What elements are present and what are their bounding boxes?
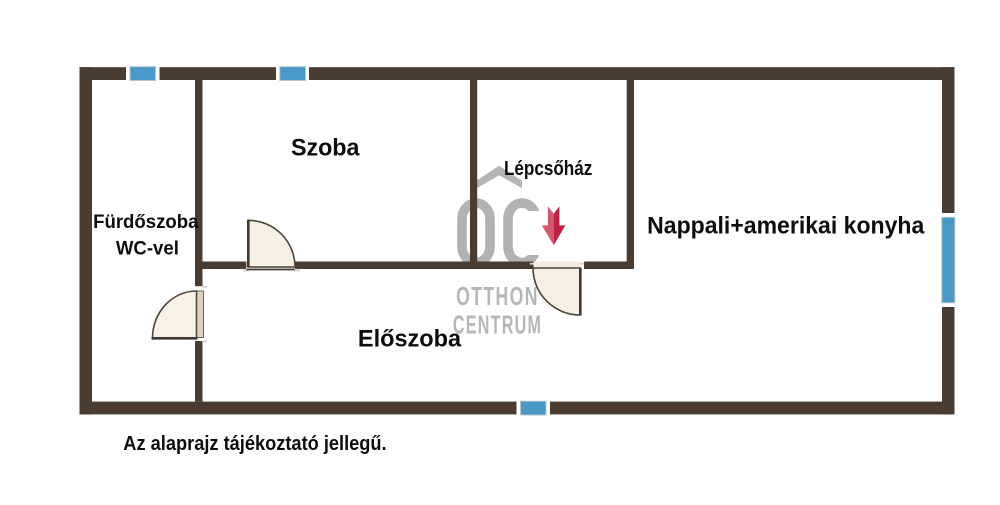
svg-text:Előszoba: Előszoba	[358, 325, 462, 352]
svg-text:Lépcsőház: Lépcsőház	[504, 157, 592, 180]
svg-text:Az alaprajz tájékoztató jelleg: Az alaprajz tájékoztató jellegű.	[123, 433, 386, 455]
svg-text:Nappali+amerikai konyha: Nappali+amerikai konyha	[647, 212, 925, 239]
svg-text:Szoba: Szoba	[291, 135, 360, 161]
svg-text:WC-vel: WC-vel	[116, 238, 179, 259]
svg-text:CENTRUM: CENTRUM	[453, 309, 542, 339]
svg-text:OTTHON: OTTHON	[456, 282, 539, 311]
svg-text:Fürdőszoba: Fürdőszoba	[93, 212, 199, 233]
